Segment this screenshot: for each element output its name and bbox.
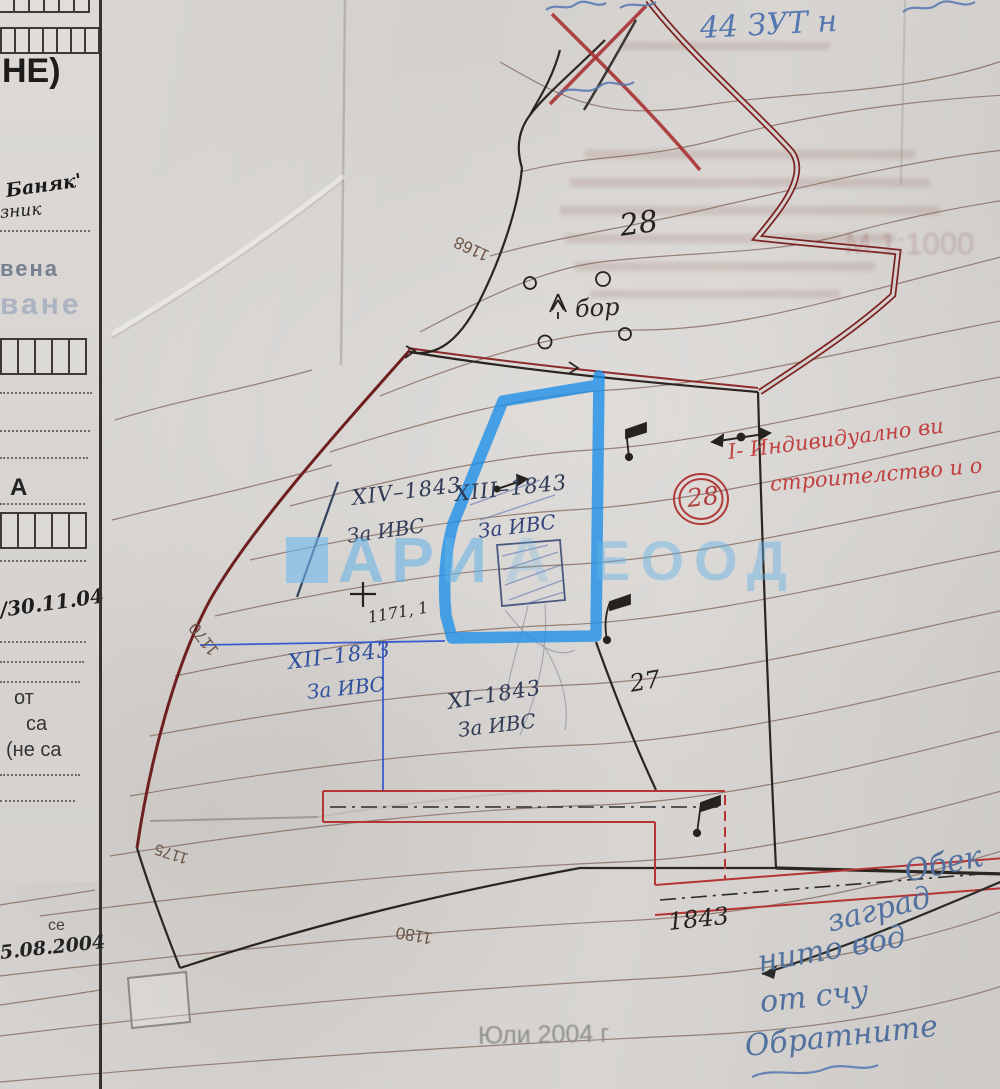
form-handwritten-name-2: зник (0, 201, 42, 222)
circled-zone-number: 28 (686, 483, 720, 511)
form-dotted-line (0, 641, 86, 643)
footer-survey-date: Юли 2004 г (478, 1022, 610, 1049)
form-grid-top (0, 0, 90, 13)
form-dotted-line (0, 681, 80, 683)
form-faded-stamp-1: вена (0, 258, 59, 280)
form-grid-mid (2, 338, 87, 375)
form-dotted-line (0, 800, 75, 802)
form-printed-ne-sa: (не са (6, 740, 62, 760)
blue-note-top: 44 ЗУТ н (699, 7, 838, 44)
form-section-letter: А (10, 476, 27, 500)
highlighted-parcel-outline (445, 376, 599, 638)
cadastral-number-1843: 1843 (667, 904, 730, 934)
ghost-scale-text: М 1:1000 (845, 228, 974, 259)
form-printed-se: се (48, 918, 65, 934)
pine-tree-icon (550, 294, 566, 319)
handwriting-strokes (546, 1, 1000, 1077)
scanned-map-document: НЕ) Баняк' зник вена ване А /30.11.04 от… (0, 0, 1000, 1089)
form-date-note-1: /30.11.04 (0, 586, 105, 620)
form-printed-sa: са (26, 714, 47, 734)
form-dotted-line (0, 503, 85, 505)
form-grid-lower (2, 512, 87, 549)
form-border-line (99, 0, 102, 1089)
form-ne-label: НЕ) (2, 54, 61, 88)
form-dotted-line (0, 230, 90, 232)
form-dotted-line (0, 661, 84, 663)
left-form-strip: НЕ) Баняк' зник вена ване А /30.11.04 от… (0, 0, 102, 882)
form-grid-row2 (2, 27, 100, 54)
pine-label: бор (574, 295, 620, 321)
neighbor-parcel-27: 27 (628, 667, 662, 696)
form-dotted-line (0, 774, 80, 776)
form-dotted-line (0, 392, 92, 394)
form-handwritten-name: Баняк' (5, 171, 83, 200)
form-dotted-line (0, 560, 86, 562)
form-faded-stamp-2: ване (0, 290, 82, 320)
terrain-number-top: 28 (618, 207, 660, 242)
form-printed-ot: от (14, 688, 34, 708)
form-dotted-line (0, 430, 90, 432)
form-dotted-line (0, 457, 88, 459)
